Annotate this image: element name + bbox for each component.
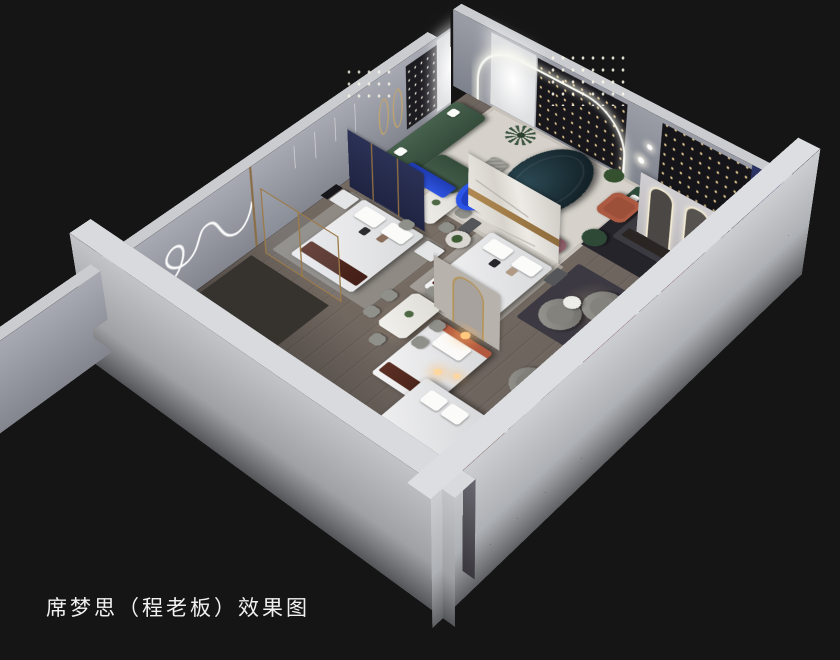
gold-oval-mirror bbox=[392, 85, 403, 131]
plant-center bbox=[515, 132, 527, 140]
gold-trim bbox=[397, 158, 400, 223]
bed1-throw-pillow bbox=[358, 227, 372, 236]
crystal-chandelier bbox=[344, 66, 392, 104]
perspective-wrap bbox=[205, 95, 705, 495]
render-caption: 席梦思（程老板）效果图 bbox=[46, 592, 310, 622]
pendant-wire bbox=[334, 117, 336, 141]
table-plant bbox=[430, 198, 442, 206]
bed-pillow bbox=[440, 403, 470, 426]
sofa-pillow bbox=[393, 147, 409, 157]
globe-wall-lamp bbox=[647, 143, 653, 151]
gold-trim bbox=[371, 143, 375, 208]
bed2-throw-pillow bbox=[488, 258, 502, 268]
bonsai-plant bbox=[449, 233, 465, 244]
isometric-scene bbox=[133, 93, 763, 555]
pendant-wire bbox=[354, 103, 356, 131]
sofa-pillow bbox=[446, 108, 461, 118]
table-plant bbox=[403, 309, 416, 318]
globe-wall-lamp bbox=[638, 156, 645, 165]
screen-divider bbox=[297, 212, 303, 276]
showroom-render-canvas: 席梦思（程老板）效果图 bbox=[0, 0, 840, 660]
crystal-chandelier bbox=[548, 52, 626, 106]
pendant-wire bbox=[314, 132, 316, 159]
pendant-wire bbox=[294, 146, 296, 169]
